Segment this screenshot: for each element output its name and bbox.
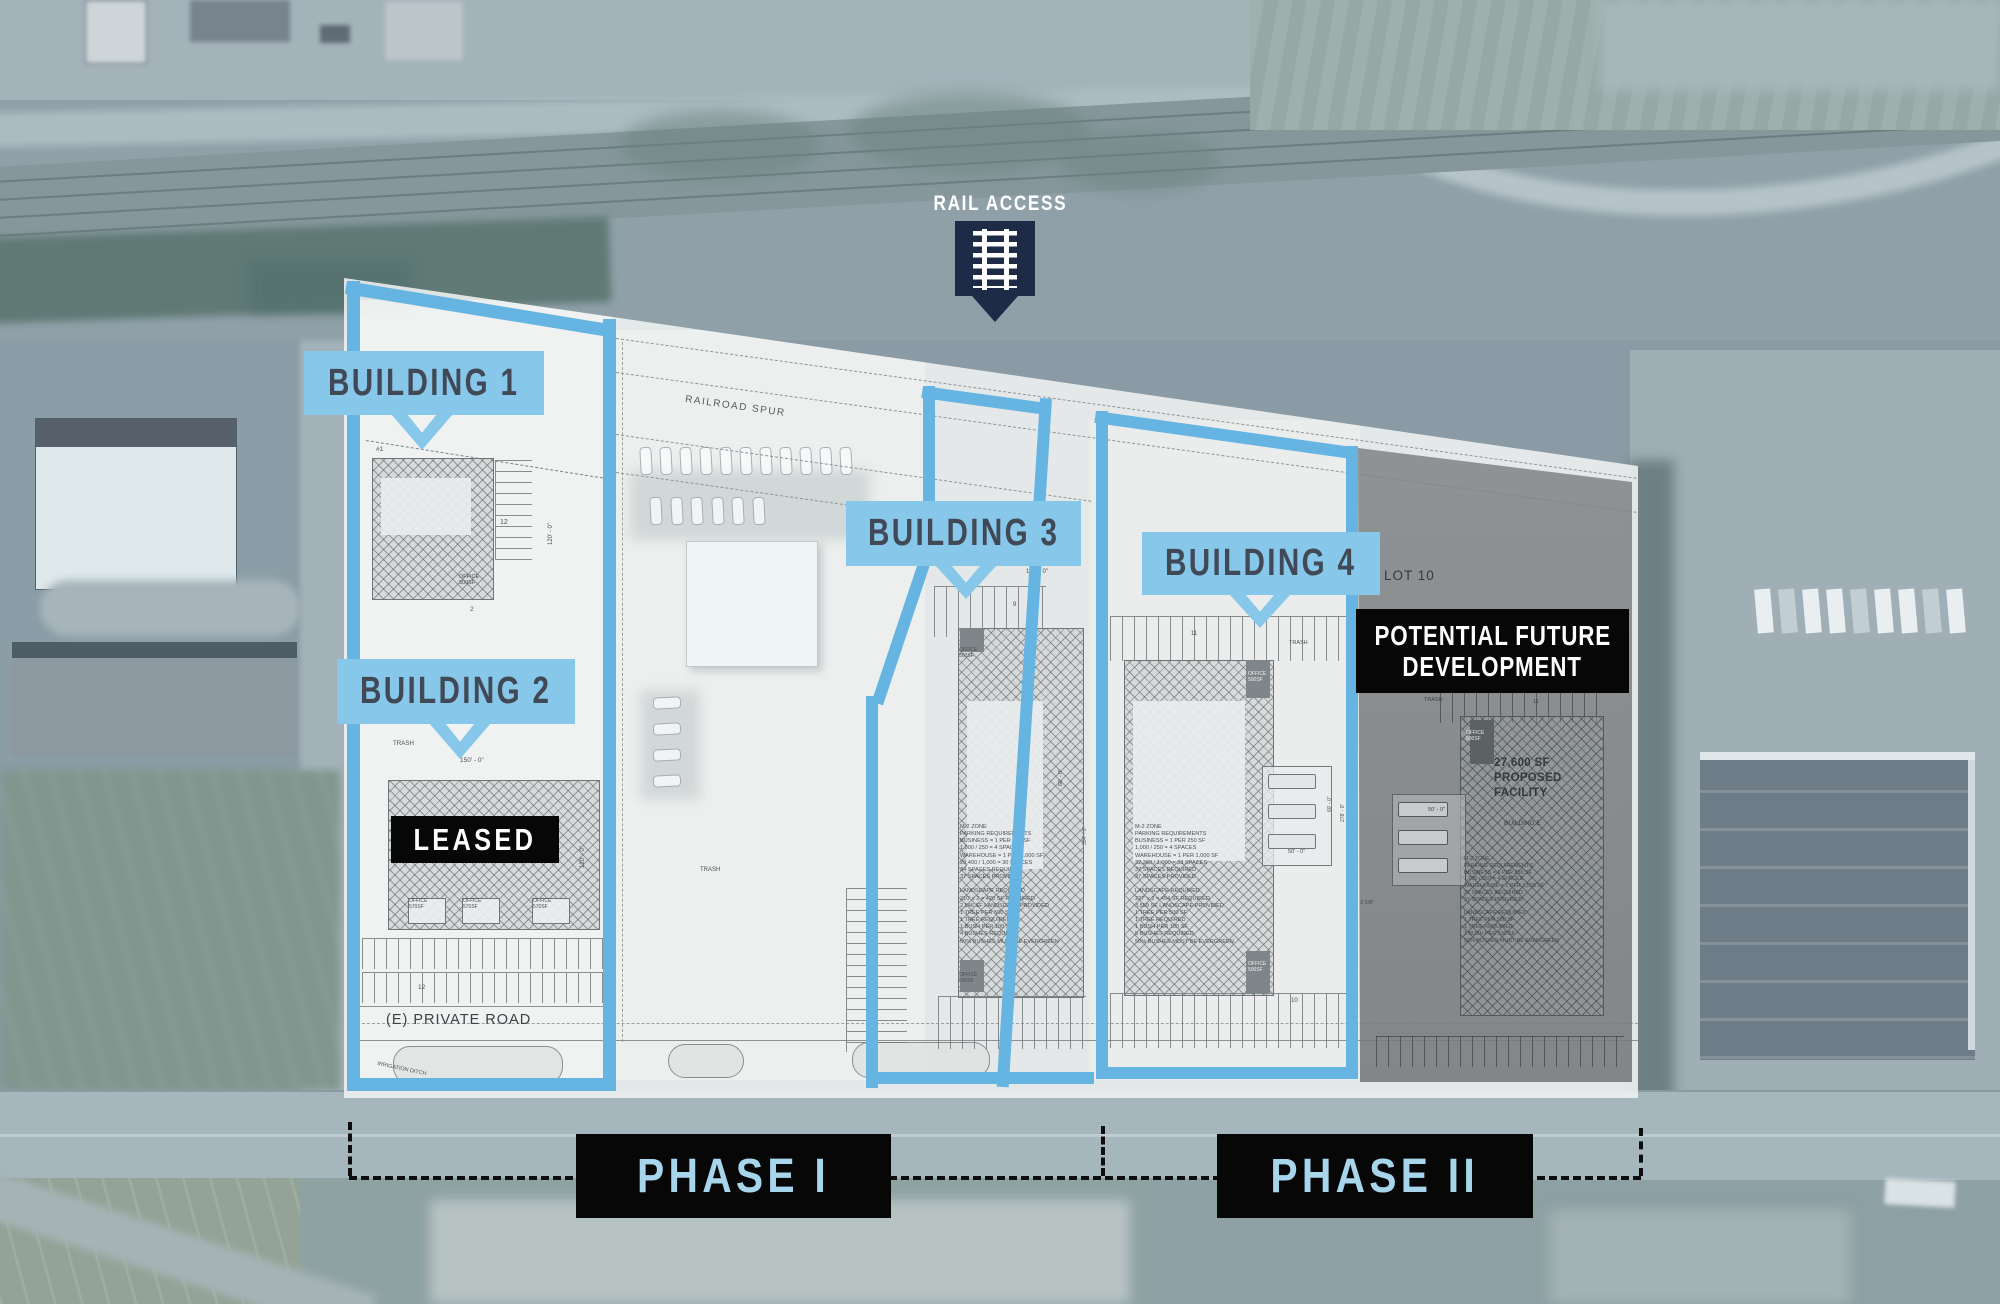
phase-2-label: PHASE II (1271, 1149, 1480, 1204)
plan-annotation: TRASH (393, 740, 414, 747)
plan-annotation: TRASH (1424, 697, 1443, 704)
site-map-image: RAILROAD SPUR#112120' - 0"OFFICE 500SF2T… (0, 0, 2000, 1304)
plan-annotation: 12 (500, 519, 508, 527)
leased-badge: LEASED (391, 816, 559, 863)
plan-annotation: 150' - 0" (460, 757, 484, 765)
phase-2-badge: PHASE II (1217, 1134, 1533, 1218)
potential-future-line2: DEVELOPMENT (1403, 651, 1582, 682)
plan-annotation: 10 (1291, 998, 1298, 1005)
plan-annotation: #1 (376, 446, 383, 454)
plan-annotation: 11 (1533, 699, 1539, 706)
leased-label: LEASED (414, 822, 537, 858)
plan-annotation: OFFICE 500SF (459, 574, 479, 587)
plan-annotation: OFFICE 500SF (1466, 731, 1484, 743)
plan-annotation: IRRIGATION DITCH (377, 1061, 427, 1078)
plan-annotation: OFFICE 500SF (959, 648, 977, 660)
plan-annotation: TRASH (1289, 640, 1308, 647)
rail-access-marker (955, 221, 1035, 296)
building-4-label: BUILDING 4 (1165, 542, 1356, 585)
lot-10-label: LOT 10 (1384, 568, 1435, 583)
plan-annotation: OFFICE 570SF (409, 899, 427, 911)
building-e-label: BUILDING E (1504, 820, 1541, 827)
building-1-callout: BUILDING 1 (304, 351, 544, 415)
plan-annotation: 9 (1013, 602, 1016, 609)
plan-annotation: 12 (418, 984, 425, 992)
building-3-label: BUILDING 3 (868, 512, 1059, 555)
plan-annotation: RAILROAD SPUR (684, 394, 786, 420)
building-3-callout: BUILDING 3 (846, 501, 1081, 566)
plan-annotation: TRASH (700, 867, 720, 874)
building-2-callout: BUILDING 2 (337, 659, 575, 724)
plan-annotation: 120' - 0" (580, 846, 587, 868)
plan-annotation: OFFICE 500SF (1248, 672, 1266, 684)
plan-annotation: 50' - 0" (1288, 849, 1305, 856)
plan-annotation: OFFICE 500SF (959, 973, 977, 985)
rail-access-label: RAIL ACCESS (934, 192, 1057, 216)
plan-annotation: 11 (1191, 631, 1197, 638)
plan-annotation: 66' - 0" (1058, 769, 1065, 786)
railroad-tracks-icon (973, 231, 1017, 288)
plan-annotation: 304' - 0" (1082, 827, 1088, 845)
building-2-label: BUILDING 2 (360, 670, 551, 713)
proposed-facility-label: 27,600 SF PROPOSED FACILITY (1494, 756, 1562, 801)
plan-annotation: M-2 ZONE PARKING REQUIREMENTS BUSINESS =… (1135, 824, 1234, 946)
plan-annotation: OFFICE 570SF (533, 899, 551, 911)
plan-annotation: 120' - 0" (548, 523, 555, 545)
potential-future-development-badge: POTENTIAL FUTURE DEVELOPMENT (1356, 609, 1629, 693)
building-1-label: BUILDING 1 (328, 362, 519, 405)
phase-1-label: PHASE I (637, 1149, 830, 1204)
plan-annotation: 2 (470, 606, 474, 614)
plan-annotation: (E) PRIVATE ROAD (386, 1012, 531, 1029)
plan-annotation: 50' - 0" (1428, 807, 1445, 814)
phase-1-badge: PHASE I (576, 1134, 891, 1218)
rail-access-marker-tip-icon (972, 296, 1018, 322)
plan-annotation: OFFICE 500SF (1248, 962, 1266, 974)
building-4-callout: BUILDING 4 (1142, 532, 1380, 595)
plan-annotation: 60' - 0" (1327, 796, 1333, 812)
plan-annotation: M-2 ZONE PARKING REQUIREMENTS BUSINESS =… (1464, 856, 1559, 944)
plan-annotation: OFFICE 570SF (463, 899, 481, 911)
potential-future-line1: POTENTIAL FUTURE (1374, 620, 1610, 651)
